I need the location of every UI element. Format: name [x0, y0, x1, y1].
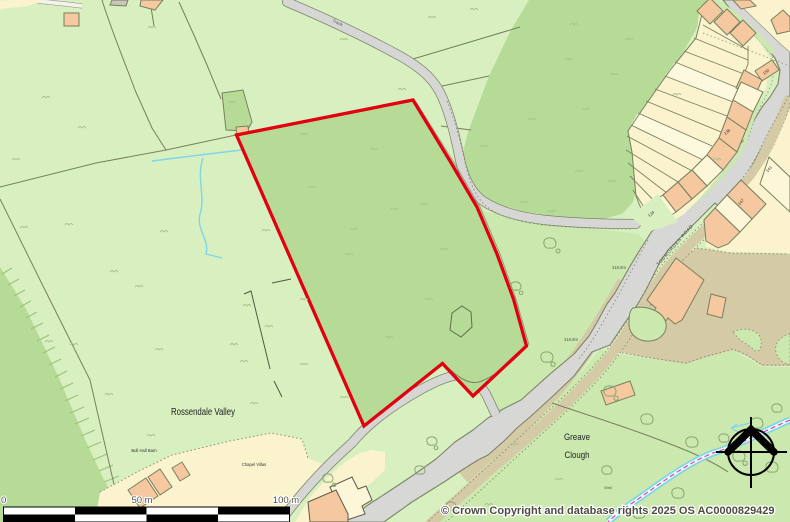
- svg-text:Greave: Greave: [564, 432, 590, 443]
- svg-text:316.8m: 316.8m: [564, 337, 578, 342]
- svg-text:100 m: 100 m: [273, 495, 299, 506]
- svg-text:© Crown Copyright and database: © Crown Copyright and database rights 20…: [441, 505, 775, 517]
- svg-text:Well: Well: [604, 485, 612, 490]
- svg-text:0: 0: [1, 495, 6, 506]
- svg-text:Rossendale Valley: Rossendale Valley: [171, 407, 235, 418]
- svg-text:318.8m: 318.8m: [612, 265, 626, 270]
- svg-text:Clough: Clough: [565, 450, 590, 461]
- svg-text:Bull Hall Barn: Bull Hall Barn: [131, 448, 157, 453]
- svg-text:Chapel Villas: Chapel Villas: [242, 462, 266, 467]
- svg-text:50 m: 50 m: [131, 495, 152, 506]
